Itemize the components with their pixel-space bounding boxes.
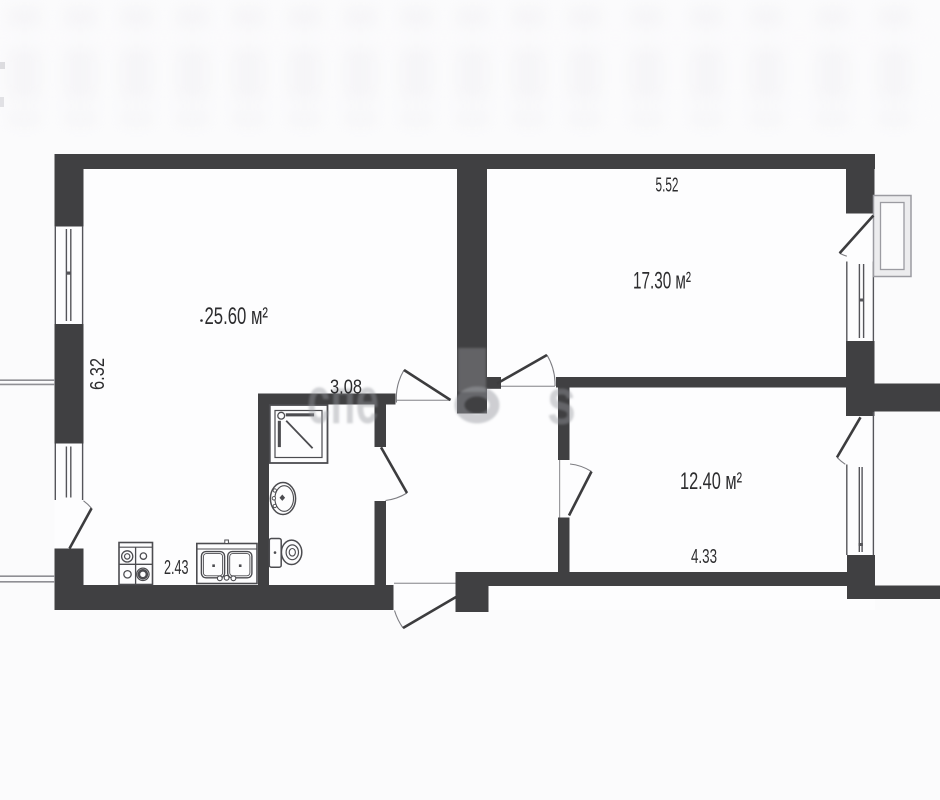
svg-text:спе: спе: [307, 363, 379, 437]
svg-text:17.30 м²: 17.30 м²: [633, 268, 691, 295]
svg-text:6.32: 6.32: [87, 358, 109, 390]
svg-text:3.08: 3.08: [330, 377, 362, 399]
svg-text:s: s: [547, 364, 576, 438]
svg-text:25.60 м²: 25.60 м²: [205, 303, 269, 330]
svg-text:12.40 м²: 12.40 м²: [680, 468, 742, 495]
svg-text:4.33: 4.33: [691, 546, 717, 568]
svg-text:5.52: 5.52: [656, 174, 679, 196]
svg-text:2.43: 2.43: [164, 557, 189, 579]
